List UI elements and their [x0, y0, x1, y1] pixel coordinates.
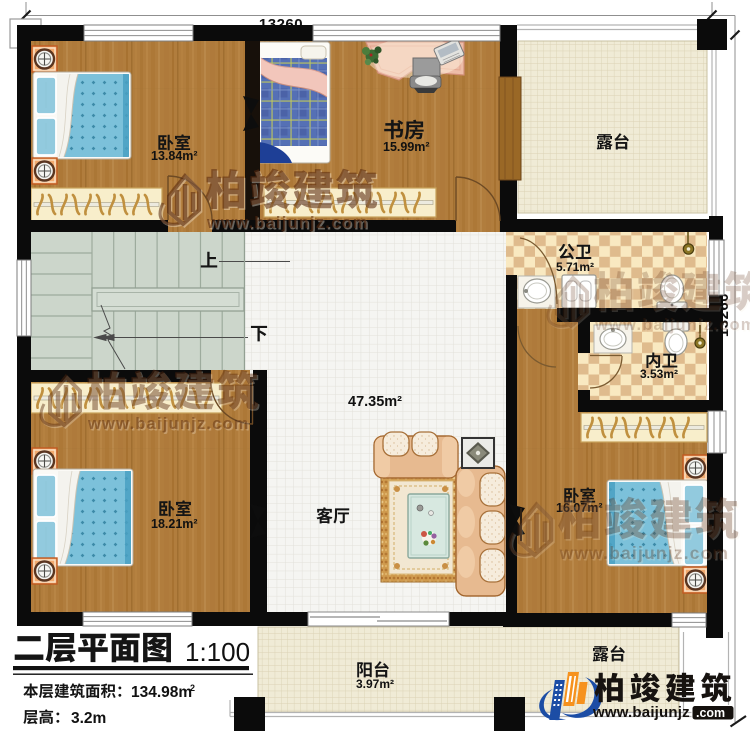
svg-text:.com: .com: [696, 706, 725, 720]
svg-text:18.21m²: 18.21m²: [151, 517, 198, 531]
svg-text:3.2m: 3.2m: [71, 710, 106, 727]
svg-text:1:100: 1:100: [185, 637, 250, 667]
svg-text:13.84m²: 13.84m²: [151, 149, 198, 163]
svg-text:47.35m²: 47.35m²: [348, 394, 402, 410]
svg-text:2: 2: [190, 683, 195, 693]
svg-text:5.71m²: 5.71m²: [556, 260, 594, 274]
svg-text:www.baijunjz: www.baijunjz: [592, 704, 690, 721]
svg-text:3.97m²: 3.97m²: [356, 677, 394, 691]
svg-text:3.53m²: 3.53m²: [640, 367, 678, 381]
svg-text:15.99m²: 15.99m²: [383, 140, 430, 154]
svg-text:134.98m: 134.98m: [131, 684, 192, 701]
